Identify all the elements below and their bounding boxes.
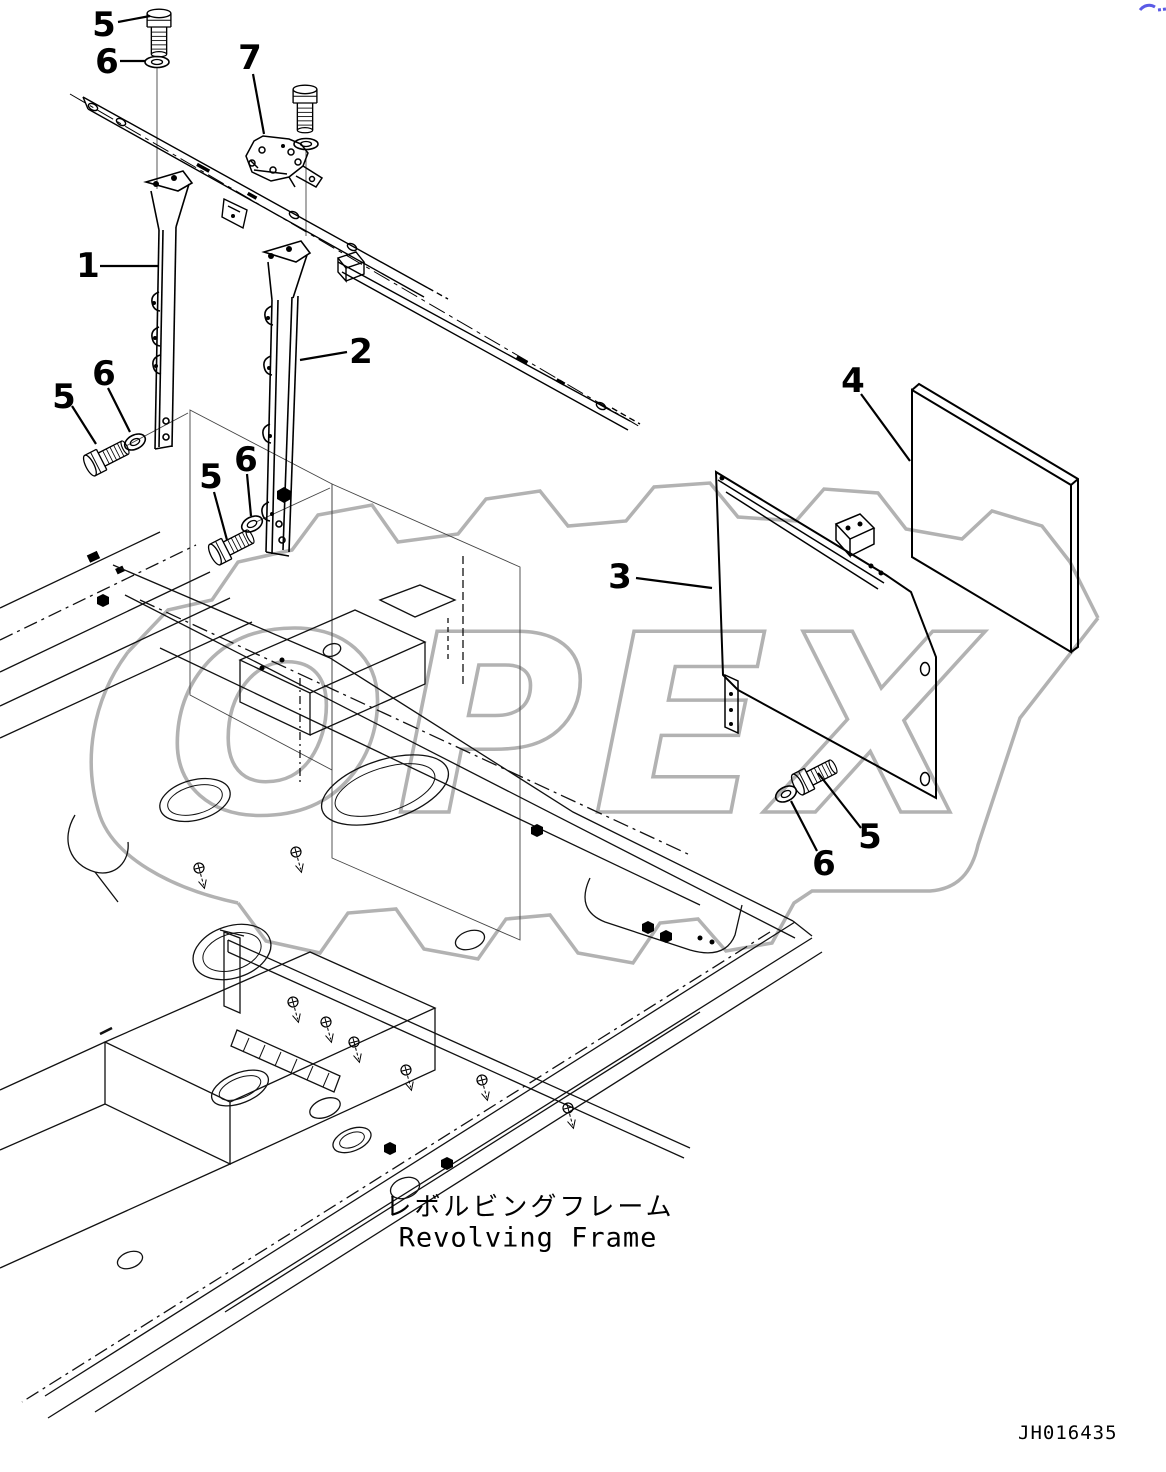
callout-7: 7 bbox=[238, 41, 262, 75]
part-2-bar bbox=[262, 241, 310, 556]
callout-6-left: 6 bbox=[92, 357, 116, 391]
part-1-bar bbox=[146, 171, 192, 449]
part-5-bolt-bracket bbox=[293, 85, 317, 133]
callout-5-right: 5 bbox=[858, 820, 882, 854]
corner-mark bbox=[1140, 5, 1166, 10]
callout-5-left: 5 bbox=[52, 380, 76, 414]
callout-4: 4 bbox=[841, 364, 865, 398]
callout-6-right: 6 bbox=[812, 847, 836, 881]
callout-3: 3 bbox=[608, 560, 632, 594]
callout-5-mid: 5 bbox=[199, 460, 223, 494]
frame-title-japanese: レボルビングフレーム bbox=[385, 1187, 674, 1224]
callout-5-top: 5 bbox=[92, 8, 116, 42]
part-6-washer-top bbox=[145, 57, 169, 68]
callout-2: 2 bbox=[349, 335, 373, 369]
drawing-code: JH016435 bbox=[1018, 1422, 1118, 1444]
callout-1: 1 bbox=[76, 249, 100, 283]
callout-6-top: 6 bbox=[95, 45, 119, 79]
part-6-washer-left bbox=[122, 431, 148, 453]
parts-diagram-page: OPEX bbox=[0, 0, 1166, 1472]
part-7-bracket bbox=[246, 136, 322, 187]
frame-title-english: Revolving Frame bbox=[399, 1223, 658, 1254]
part-6-washer-bracket bbox=[294, 139, 318, 150]
part-5-bolt-top bbox=[147, 9, 171, 57]
callout-6-mid: 6 bbox=[234, 443, 258, 477]
